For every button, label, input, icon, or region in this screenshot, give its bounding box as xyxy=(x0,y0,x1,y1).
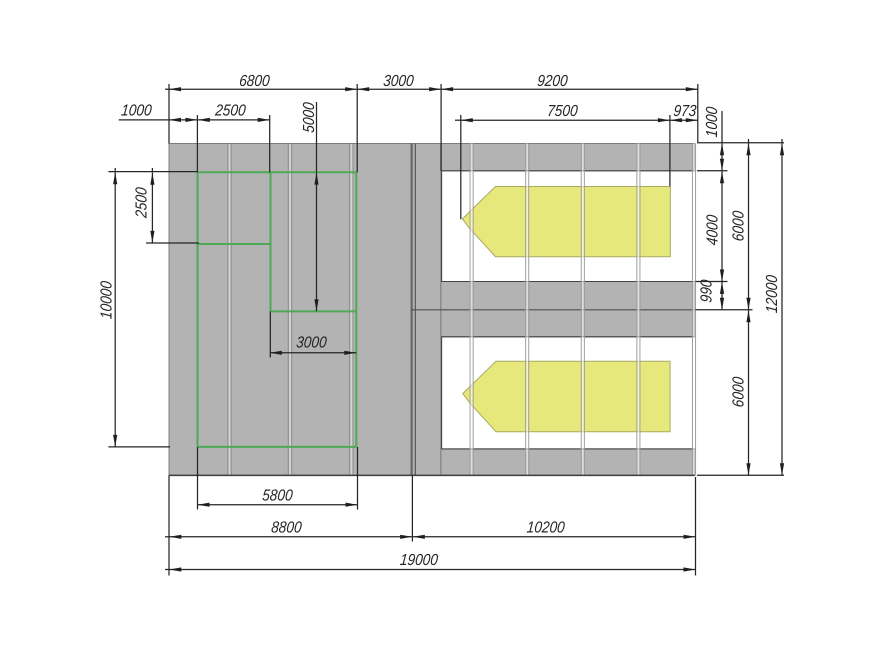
svg-text:8800: 8800 xyxy=(271,519,303,536)
svg-text:7500: 7500 xyxy=(547,103,579,120)
svg-text:9200: 9200 xyxy=(537,73,569,90)
svg-text:5000: 5000 xyxy=(301,102,318,134)
svg-text:10000: 10000 xyxy=(99,280,116,319)
svg-text:4000: 4000 xyxy=(705,214,722,246)
svg-text:2500: 2500 xyxy=(214,103,247,120)
svg-text:6800: 6800 xyxy=(239,73,271,90)
svg-text:5800: 5800 xyxy=(262,487,294,504)
svg-text:1000: 1000 xyxy=(704,106,721,138)
svg-text:6000: 6000 xyxy=(731,376,748,408)
svg-text:12000: 12000 xyxy=(764,274,781,313)
svg-text:990: 990 xyxy=(699,279,716,303)
svg-text:1000: 1000 xyxy=(121,103,153,120)
svg-text:6000: 6000 xyxy=(731,210,748,242)
svg-text:19000: 19000 xyxy=(399,552,438,569)
svg-text:973: 973 xyxy=(673,103,697,120)
svg-text:2500: 2500 xyxy=(134,187,151,220)
svg-text:10200: 10200 xyxy=(526,519,565,536)
svg-text:3000: 3000 xyxy=(383,73,415,90)
svg-text:3000: 3000 xyxy=(296,334,328,351)
